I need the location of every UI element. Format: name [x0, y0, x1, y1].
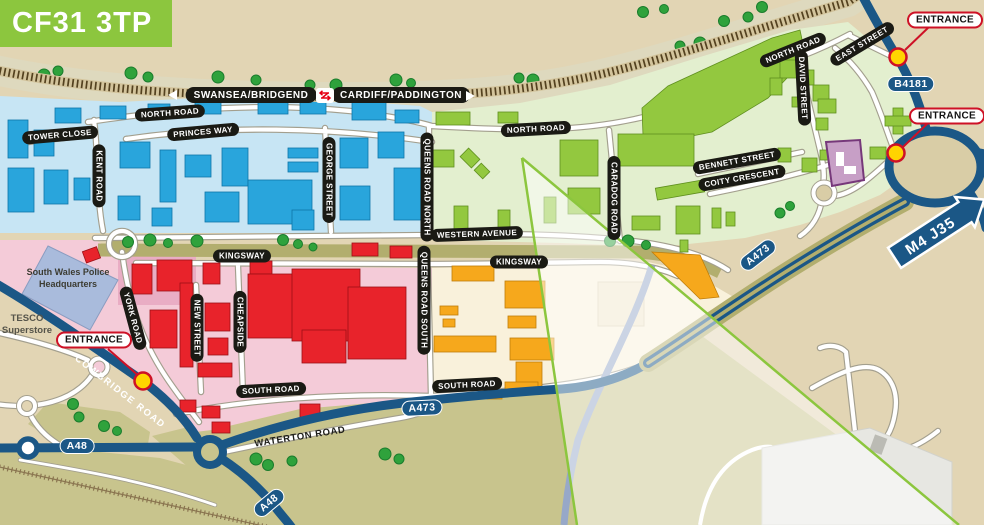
building-purple: [826, 140, 864, 186]
road-label-kent-road: KENT ROAD: [93, 144, 106, 207]
road-label-george-street: GEORGE STREET: [323, 137, 336, 223]
route-badge-a473: A473: [401, 399, 443, 417]
road-label-cheapside: CHEAPSIDE: [234, 291, 247, 353]
railway-label-swansea: SWANSEA/BRIDGEND: [186, 87, 317, 103]
railway-arrow-right-icon: [466, 91, 475, 101]
railway-arrow-left-icon: [168, 90, 177, 100]
entrance-point-icon: [135, 373, 152, 390]
route-badge-b4181: B4181: [887, 76, 934, 92]
estate-map: CF31 3TP SWANSEA/BRIDGEND CARDIFF/PADDIN…: [0, 0, 984, 525]
entrance-label-2: ENTRANCE: [909, 108, 984, 125]
entrance-label-1: ENTRANCE: [907, 12, 983, 29]
road-label-queens-road-south: QUEENS ROAD SOUTH: [418, 246, 431, 355]
entrance-point-icon: [890, 49, 907, 66]
entrance-point-icon: [888, 145, 905, 162]
road-label-kingsway-2: KINGSWAY: [490, 256, 548, 269]
entrance-label-3: ENTRANCE: [56, 332, 132, 349]
road-label-new-street: NEW STREET: [191, 294, 204, 362]
a473-roundabout: [197, 439, 223, 465]
railway-label-cardiff: CARDIFF/PADDINGTON: [332, 87, 470, 103]
road-label-kingsway: KINGSWAY: [213, 250, 271, 263]
national-rail-icon: [316, 88, 334, 103]
police-hq-label: South Wales Police Headquarters: [27, 266, 110, 290]
police-hq-line1: South Wales Police: [27, 266, 110, 278]
a48-mini-roundabout: [19, 439, 37, 457]
road-label-queens-road-north: QUEENS ROAD NORTH: [421, 132, 434, 241]
police-hq-line2: Headquarters: [27, 278, 110, 290]
tesco-label: TESCO Superstore: [2, 313, 52, 337]
tesco-line2: Superstore: [2, 325, 52, 337]
tesco-line1: TESCO: [2, 313, 52, 325]
postcode-badge: CF31 3TP: [0, 0, 172, 47]
road-label-caradog-road: CARADOG ROAD: [608, 156, 621, 240]
route-badge-a48: A48: [60, 438, 95, 454]
